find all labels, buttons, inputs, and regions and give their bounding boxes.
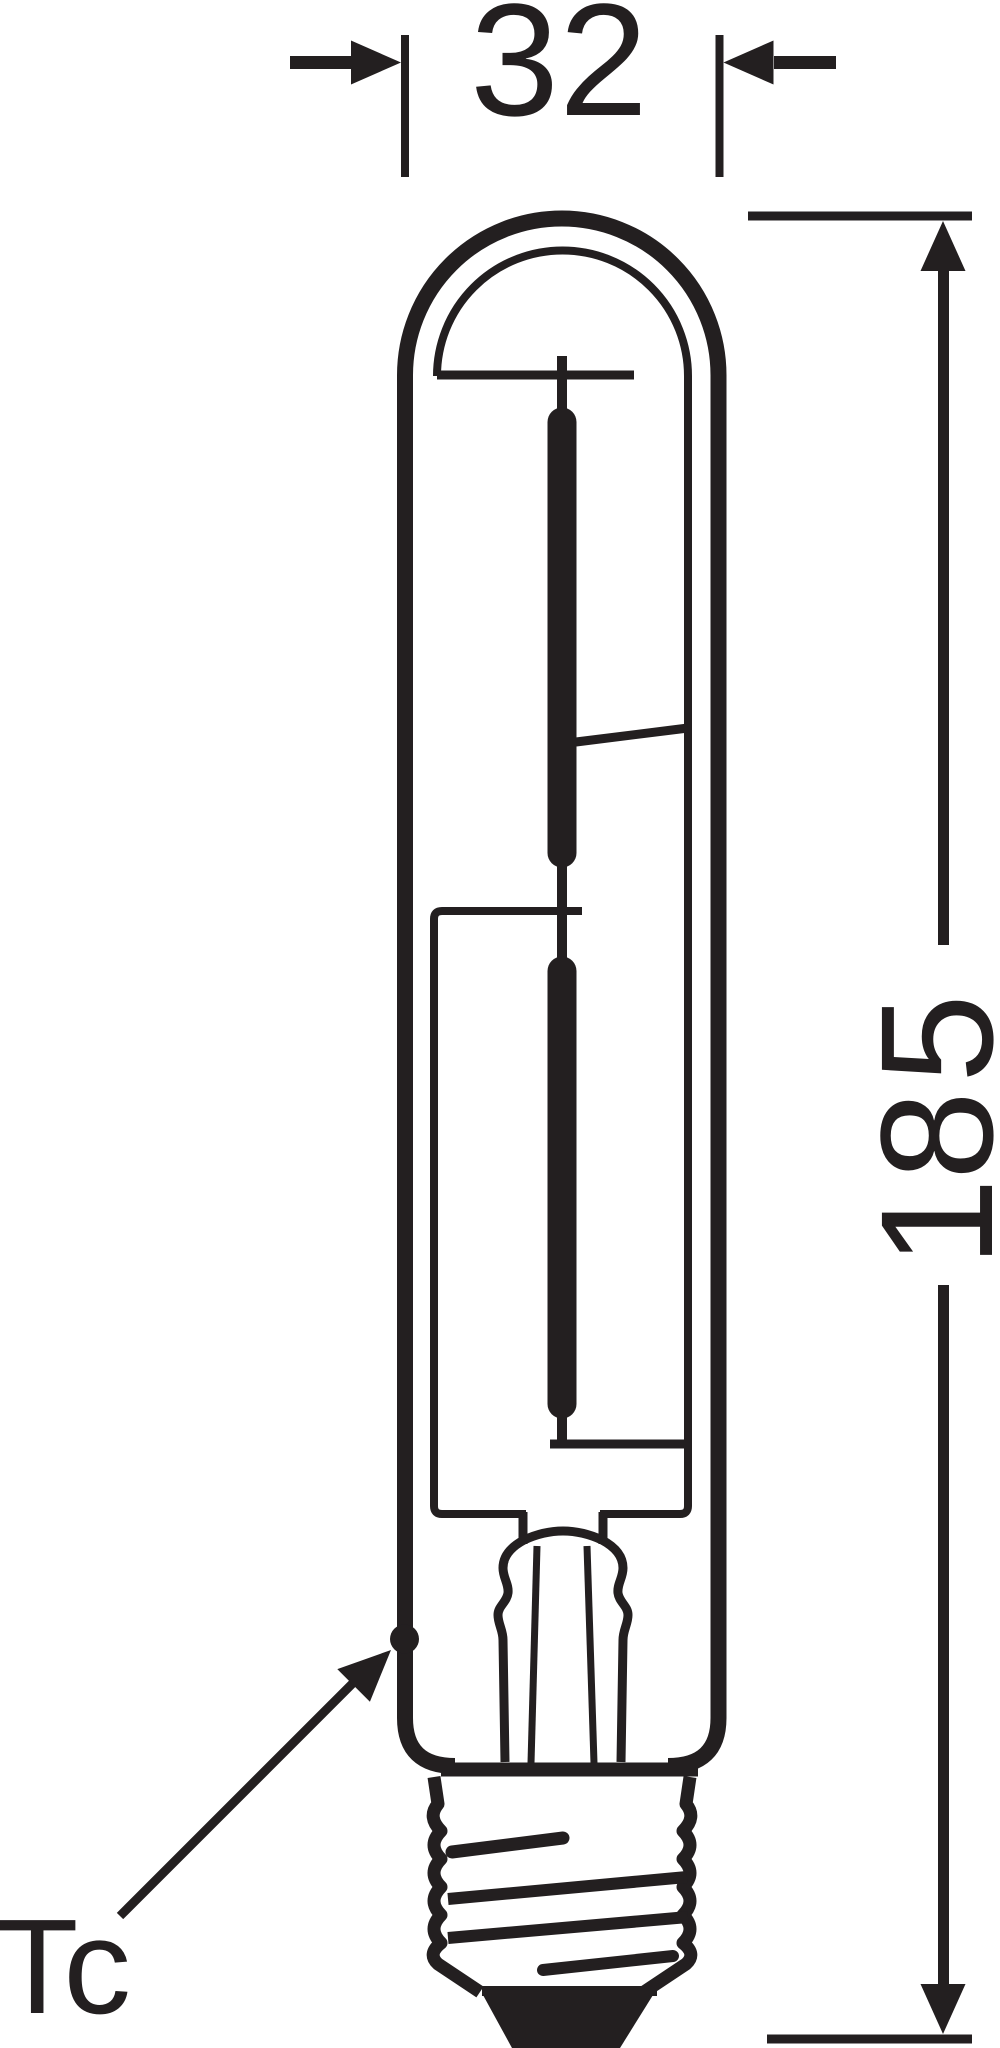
svg-text:32: 32 [470, 0, 648, 149]
svg-text:185: 185 [847, 994, 1000, 1267]
svg-text:Tc: Tc [0, 1891, 131, 2042]
